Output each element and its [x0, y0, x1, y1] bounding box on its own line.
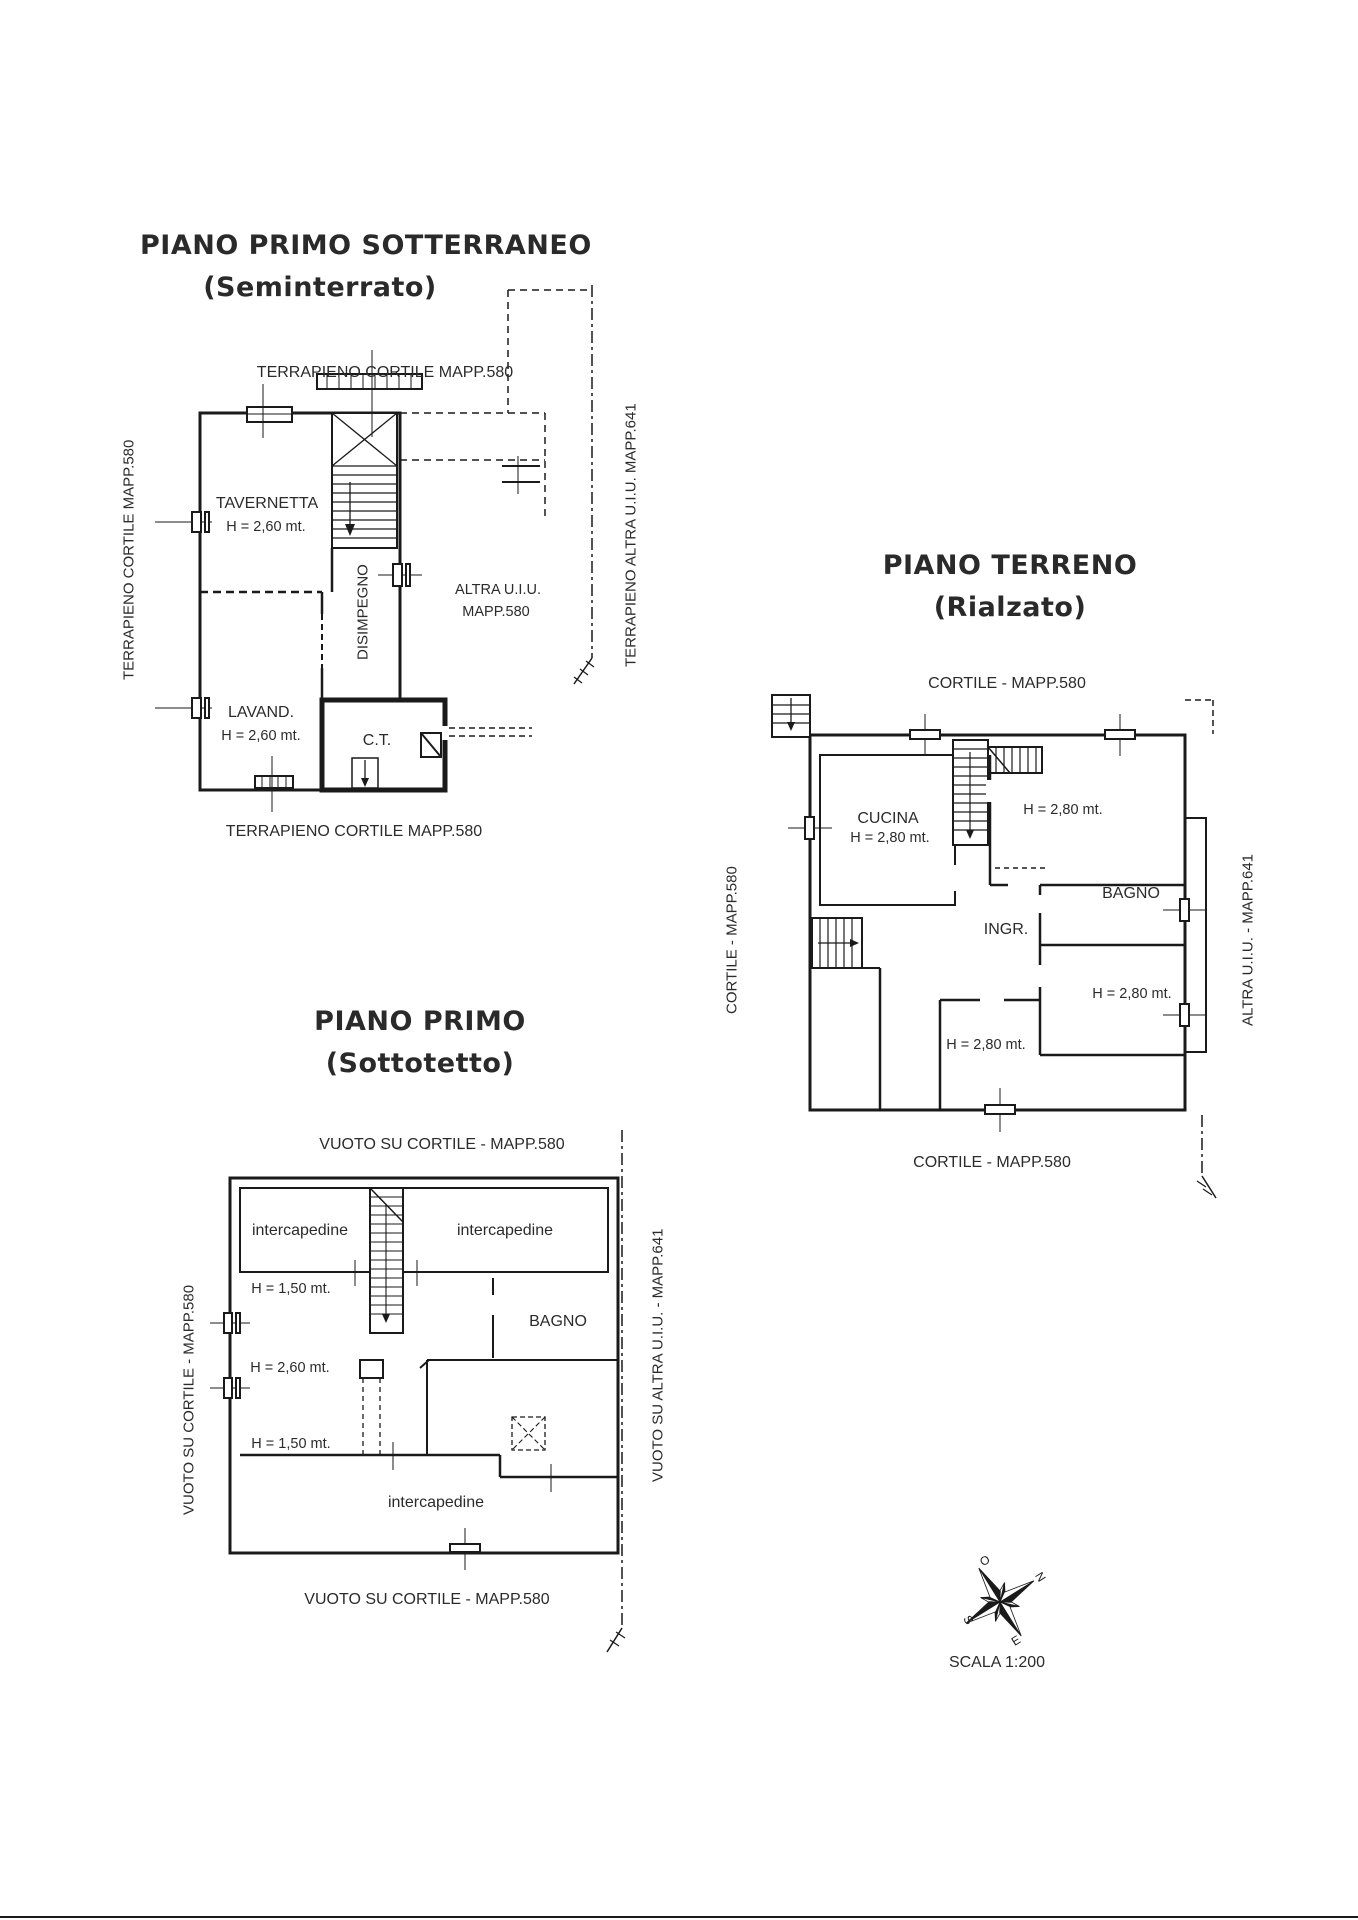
- room-label-tavernetta: TAVERNETTA: [216, 495, 318, 513]
- room-height-camera-nord: H = 2,80 mt.: [1023, 802, 1102, 818]
- room-height-h150-nord: H = 1,50 mt.: [251, 1281, 330, 1297]
- room-label-bagno-terreno: BAGNO: [1102, 885, 1160, 903]
- room-label-intercapedine-no: intercapedine: [252, 1222, 348, 1240]
- room-label-disimpegno: DISIMPEGNO: [354, 528, 372, 696]
- terreno-label-right: ALTRA U.I.U. - MAPP.641: [1239, 840, 1257, 1040]
- page-bottom-edge: [0, 1916, 1358, 1918]
- seminterrato-linework: [150, 270, 650, 860]
- scale-label: SCALA 1:200: [922, 1654, 1072, 1672]
- sottotetto-label-top: VUOTO SU CORTILE - MAPP.580: [292, 1136, 592, 1154]
- room-label-ct: C.T.: [363, 732, 391, 750]
- room-height-camera-sud: H = 2,80 mt.: [946, 1037, 1025, 1053]
- sottotetto-title: PIANO PRIMO: [300, 1006, 540, 1037]
- label-altra-uiu: ALTRA U.I.U.: [455, 582, 541, 598]
- seminterrato-label-top: TERRAPIENO CORTILE MAPP.580: [235, 364, 535, 382]
- room-height-camera-est: H = 2,80 mt.: [1092, 986, 1171, 1002]
- compass-o: O: [977, 1552, 992, 1569]
- sottotetto-label-left: VUOTO SU CORTILE - MAPP.580: [180, 1260, 198, 1540]
- room-label-cucina: CUCINA: [857, 810, 918, 828]
- room-label-intercapedine-sud: intercapedine: [388, 1494, 484, 1512]
- seminterrato-label-bottom: TERRAPIENO CORTILE MAPP.580: [204, 823, 504, 841]
- terreno-linework: [700, 660, 1260, 1220]
- seminterrato-title: PIANO PRIMO SOTTERRANEO: [140, 230, 500, 261]
- room-label-intercapedine-ne: intercapedine: [457, 1222, 553, 1240]
- room-height-cucina: H = 2,80 mt.: [850, 830, 929, 846]
- seminterrato-label-right: TERRAPIENO ALTRA U.I.U. MAPP.641: [622, 385, 640, 685]
- terreno-label-left: CORTILE - MAPP.580: [723, 840, 741, 1040]
- room-height-lavanderia: H = 2,60 mt.: [221, 728, 300, 744]
- room-height-tavernetta: H = 2,60 mt.: [226, 519, 305, 535]
- terreno-subtitle: (Rialzato): [860, 592, 1160, 623]
- seminterrato-label-left: TERRAPIENO CORTILE MAPP.580: [120, 430, 138, 690]
- compass-s: S: [960, 1613, 976, 1627]
- sottotetto-label-bottom: VUOTO SU CORTILE - MAPP.580: [277, 1591, 577, 1609]
- floorplan-sheet: PIANO PRIMO SOTTERRANEO (Seminterrato) P…: [0, 0, 1358, 1920]
- terreno-title: PIANO TERRENO: [860, 550, 1160, 581]
- terreno-label-bottom: CORTILE - MAPP.580: [842, 1154, 1142, 1172]
- room-label-ingresso: INGR.: [984, 921, 1028, 939]
- label-altra-uiu-mappale: MAPP.580: [462, 604, 529, 620]
- sottotetto-subtitle: (Sottotetto): [300, 1048, 540, 1079]
- terreno-label-top: CORTILE - MAPP.580: [857, 675, 1157, 693]
- room-height-h150-sud: H = 1,50 mt.: [251, 1436, 330, 1452]
- compass-n: N: [1032, 1569, 1048, 1584]
- room-height-h260: H = 2,60 mt.: [250, 1360, 329, 1376]
- sottotetto-label-right: VUOTO SU ALTRA U.I.U. - MAPP.641: [649, 1205, 667, 1505]
- room-label-lavanderia: LAVAND.: [228, 704, 294, 722]
- room-label-bagno-sottotetto: BAGNO: [529, 1313, 587, 1331]
